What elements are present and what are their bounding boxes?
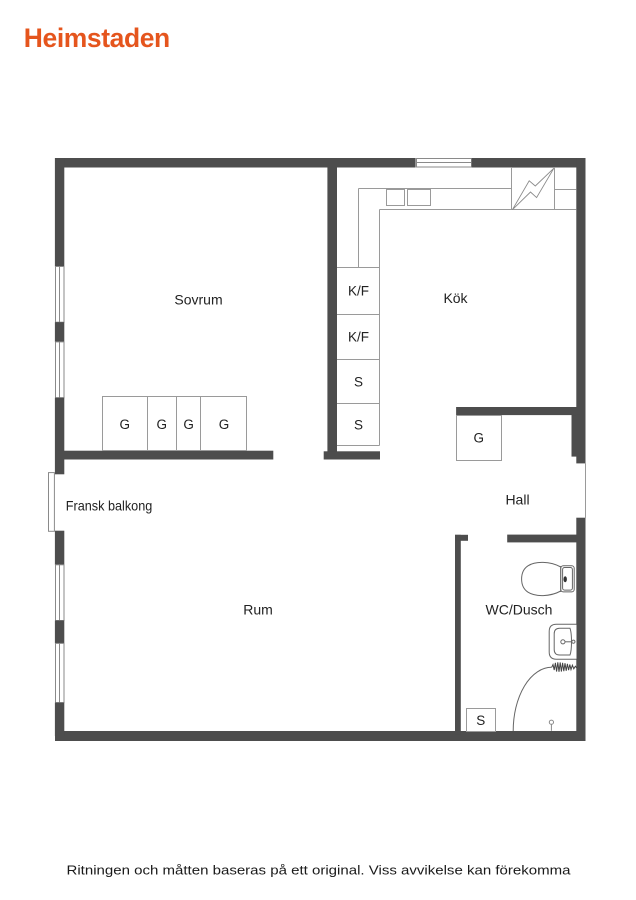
svg-text:S: S — [476, 713, 485, 728]
svg-text:G: G — [119, 417, 130, 432]
svg-text:Sovrum: Sovrum — [174, 291, 222, 307]
svg-text:S: S — [354, 375, 363, 390]
svg-text:K/F: K/F — [348, 330, 369, 345]
svg-text:Fransk balkong: Fransk balkong — [66, 498, 153, 514]
svg-text:S: S — [354, 418, 363, 433]
svg-text:WC/Dusch: WC/Dusch — [486, 602, 553, 618]
svg-text:G: G — [156, 417, 167, 432]
svg-text:Hall: Hall — [505, 492, 529, 508]
svg-text:Ritningen och måtten baseras p: Ritningen och måtten baseras på ett orig… — [67, 863, 572, 878]
svg-text:G: G — [474, 431, 485, 446]
svg-text:Kök: Kök — [443, 290, 468, 306]
svg-text:G: G — [183, 417, 194, 432]
svg-text:K/F: K/F — [348, 284, 369, 299]
svg-text:Rum: Rum — [243, 602, 273, 618]
svg-text:G: G — [219, 417, 230, 432]
svg-text:Heimstaden: Heimstaden — [24, 23, 170, 53]
